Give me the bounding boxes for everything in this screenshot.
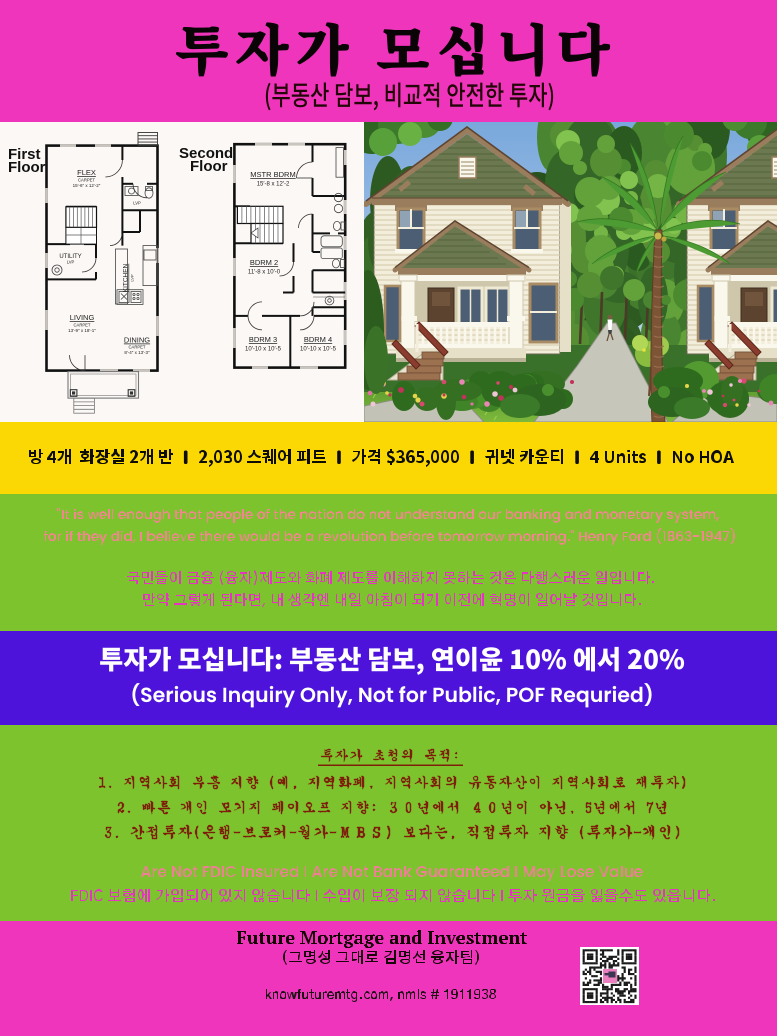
svg-text:BDRM 3: BDRM 3	[249, 335, 277, 344]
svg-text:LVP: LVP	[67, 260, 75, 265]
svg-text:8′-4″ x 13′-3″: 8′-4″ x 13′-3″	[124, 350, 150, 355]
svg-text:CARPET: CARPET	[78, 178, 95, 183]
svg-text:CARPET: CARPET	[74, 323, 91, 328]
svg-text:LVP: LVP	[133, 201, 141, 206]
svg-text:LIVING: LIVING	[70, 313, 95, 322]
svg-text:LVP: LVP	[130, 274, 135, 282]
svg-text:KITCHEN: KITCHEN	[123, 263, 130, 292]
svg-text:10′-10 x 10′-5: 10′-10 x 10′-5	[245, 347, 282, 353]
svg-text:DINING: DINING	[124, 336, 150, 345]
svg-text:CARPET: CARPET	[129, 345, 146, 350]
svg-text:Floor: Floor	[8, 159, 46, 176]
svg-text:FLEX: FLEX	[77, 168, 96, 177]
svg-text:Floor: Floor	[190, 158, 228, 175]
svg-text:11′-8 x 10′-0: 11′-8 x 10′-0	[248, 270, 281, 276]
svg-text:15′-8 x 12′-2: 15′-8 x 12′-2	[257, 182, 290, 188]
svg-text:BDRM 4: BDRM 4	[304, 335, 332, 344]
svg-text:13′-9″ x 18′-1″: 13′-9″ x 18′-1″	[68, 328, 96, 333]
svg-text:BDRM 2: BDRM 2	[250, 258, 278, 267]
svg-text:MSTR BDRM: MSTR BDRM	[250, 170, 295, 179]
svg-text:10′-10 x 10′-5: 10′-10 x 10′-5	[300, 347, 337, 353]
svg-text:15′-6″ x 12′-2″: 15′-6″ x 12′-2″	[73, 183, 101, 188]
